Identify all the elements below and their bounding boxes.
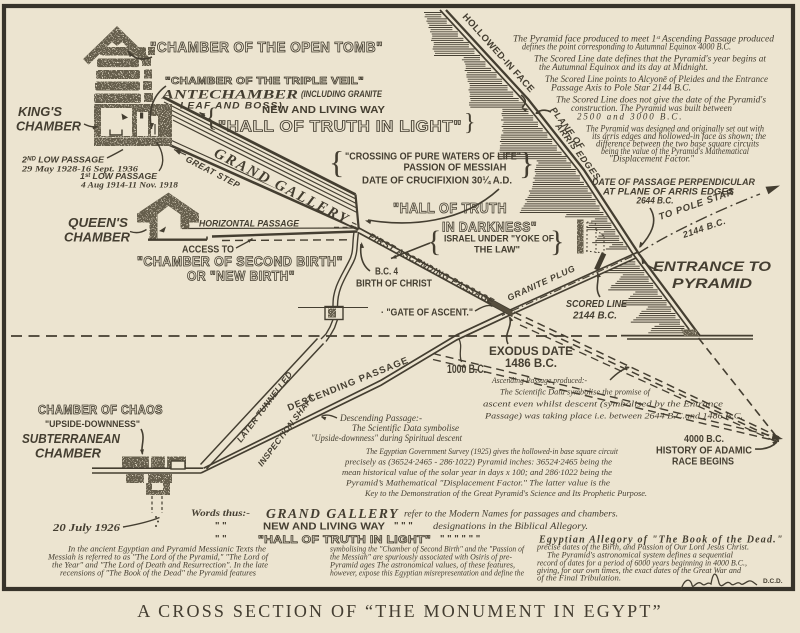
svg-text:1486 B.C.: 1486 B.C. (505, 358, 557, 370)
svg-text:}: } (519, 145, 534, 181)
svg-text:ISRAEL UNDER "YOKE OF: ISRAEL UNDER "YOKE OF (444, 234, 554, 245)
svg-text:HORIZONTAL PASSAGE: HORIZONTAL PASSAGE (199, 219, 300, 229)
svg-text:THE LAW": THE LAW" (474, 245, 520, 256)
svg-text:2144 B.C.: 2144 B.C. (572, 311, 617, 322)
svg-text:"Upside-downness" during Spiri: "Upside-downness" during Spiritual desce… (311, 433, 462, 443)
svg-text:Words thus:-: Words thus:- (191, 509, 250, 519)
svg-text:"CHAMBER OF THE TRIPLE VEIL": "CHAMBER OF THE TRIPLE VEIL" (165, 75, 364, 87)
svg-text:1000 B.C.: 1000 B.C. (447, 364, 486, 376)
svg-text:(INCLUDING GRANITE: (INCLUDING GRANITE (301, 89, 383, 99)
svg-text:recensions of "The Book of the: recensions of "The Book of the Dead" the… (60, 569, 256, 578)
svg-text:CHAMBER: CHAMBER (35, 447, 101, 461)
svg-text:CHAMBER OF CHAOS: CHAMBER OF CHAOS (38, 403, 163, 417)
svg-text:A CROSS SECTION OF “THE MONUME: A CROSS SECTION OF “THE MONUMENT IN EGYP… (137, 601, 663, 621)
svg-text:" ": " " (215, 534, 227, 545)
svg-text:Descending Passage:-: Descending Passage:- (339, 413, 422, 423)
svg-text:Passage Axis to Pole Star 214: Passage Axis to Pole Star 2144 B.C. (550, 83, 691, 93)
svg-text:"HALL OF TRUTH IN LIGHT": "HALL OF TRUTH IN LIGHT" (218, 119, 462, 136)
svg-text:ascent even whilst descent (sy: ascent even whilst descent (symbolised b… (483, 400, 723, 409)
svg-text:refer to the Modern Names for: refer to the Modern Names for passages a… (404, 509, 618, 520)
svg-text:· "GATE OF ASCENT.": · "GATE OF ASCENT." (381, 308, 473, 319)
svg-text:20 July 1926: 20 July 1926 (52, 523, 120, 534)
svg-text:Pyramid’s Mathematical "Displa: Pyramid’s Mathematical "Displacement Fac… (345, 478, 610, 488)
svg-text:EXODUS DATE: EXODUS DATE (489, 346, 573, 358)
svg-text:GRAND GALLERY: GRAND GALLERY (266, 507, 399, 522)
svg-text:PYRAMID: PYRAMID (672, 276, 752, 291)
svg-text:" " ": " " " (394, 521, 413, 532)
svg-text:SUBTERRANEAN: SUBTERRANEAN (22, 432, 121, 446)
svg-text:"Displacement Factor.": "Displacement Factor." (609, 154, 694, 164)
svg-text:of the Final Tribulation.: of the Final Tribulation. (537, 574, 621, 583)
svg-text:the Autumnal Equinox and its d: the Autumnal Equinox and its day at Midn… (539, 62, 708, 72)
svg-text:ENTRANCE TO: ENTRANCE TO (653, 259, 772, 274)
svg-text:KING'S: KING'S (18, 105, 63, 119)
svg-text:The Egyptian Government Survey: The Egyptian Government Survey (1925) gi… (366, 446, 618, 456)
svg-text:{: { (205, 103, 217, 132)
svg-text:"CHAMBER OF SECOND BIRTH": "CHAMBER OF SECOND BIRTH" (137, 254, 343, 269)
svg-text:ANTECHAMBER: ANTECHAMBER (161, 87, 299, 102)
svg-text:Passage) was taking place i.e.: Passage) was taking place i.e. between 2… (484, 412, 743, 421)
svg-text:designations in the Biblical A: designations in the Biblical Allegory. (433, 522, 588, 532)
svg-text:" " " " " ": " " " " " " (440, 534, 480, 545)
svg-text:4000 B.C.: 4000 B.C. (684, 433, 724, 445)
svg-text:2500 and 3000 B.C.: 2500 and 3000 B.C. (577, 112, 683, 122)
svg-text:IN DARKNESS": IN DARKNESS" (442, 219, 537, 235)
svg-text:Ascending Passage produced:-: Ascending Passage produced:- (491, 376, 587, 385)
svg-text:CHAMBER: CHAMBER (64, 231, 130, 245)
svg-text:{: { (329, 144, 344, 180)
svg-text:NEW AND LIVING WAY: NEW AND LIVING WAY (263, 522, 385, 533)
svg-text:The Scientific Data symbolise: The Scientific Data symbolise the promis… (500, 388, 652, 397)
svg-text:2644 B.C.: 2644 B.C. (636, 196, 674, 207)
svg-text:OR "NEW BIRTH": OR "NEW BIRTH" (187, 269, 295, 284)
svg-text:}: } (464, 110, 476, 136)
svg-text:D.C.D.: D.C.D. (763, 578, 783, 585)
svg-text:B.C. 4: B.C. 4 (375, 267, 398, 278)
svg-text:defines the point correspondin: defines the point corresponding to Autum… (522, 42, 731, 52)
svg-text:mean historical value of the s: mean historical value of the solar year … (342, 467, 612, 477)
svg-text:4 Aug 1914-11 Nov. 1918: 4 Aug 1914-11 Nov. 1918 (80, 180, 179, 190)
svg-text:"HALL OF TRUTH: "HALL OF TRUTH (393, 200, 507, 217)
svg-text:QUEEN'S: QUEEN'S (68, 216, 129, 230)
svg-text:however, expose this Egyptian: however, expose this Egyptian misreprese… (330, 569, 524, 578)
svg-text:BIRTH OF CHRIST: BIRTH OF CHRIST (356, 279, 432, 290)
svg-text:CHAMBER: CHAMBER (16, 120, 81, 134)
svg-text:DATE OF CRUCIFIXION 30¼ A.D.: DATE OF CRUCIFIXION 30¼ A.D. (362, 175, 512, 187)
svg-text:PASSION OF MESSIAH: PASSION OF MESSIAH (404, 162, 507, 174)
svg-text:{: { (427, 225, 441, 258)
svg-text:"UPSIDE-DOWNNESS": "UPSIDE-DOWNNESS" (45, 419, 140, 430)
svg-text:" ": " " (215, 521, 227, 532)
svg-text:SCORED LINE: SCORED LINE (566, 299, 627, 310)
svg-text:"CHAMBER OF THE OPEN TOMB": "CHAMBER OF THE OPEN TOMB" (150, 40, 383, 56)
svg-text:The Scientific Data symbolise: The Scientific Data symbolise (352, 423, 459, 433)
svg-text:RACE BEGINS: RACE BEGINS (672, 456, 734, 468)
svg-text:precisely as (36524·2465 - 286: precisely as (36524·2465 - 286·1022) Pyr… (344, 457, 612, 467)
svg-text:NEW AND LIVING WAY: NEW AND LIVING WAY (262, 104, 385, 116)
svg-text:Key to the Demonstration of th: Key to the Demonstration of the Great Py… (364, 488, 647, 498)
